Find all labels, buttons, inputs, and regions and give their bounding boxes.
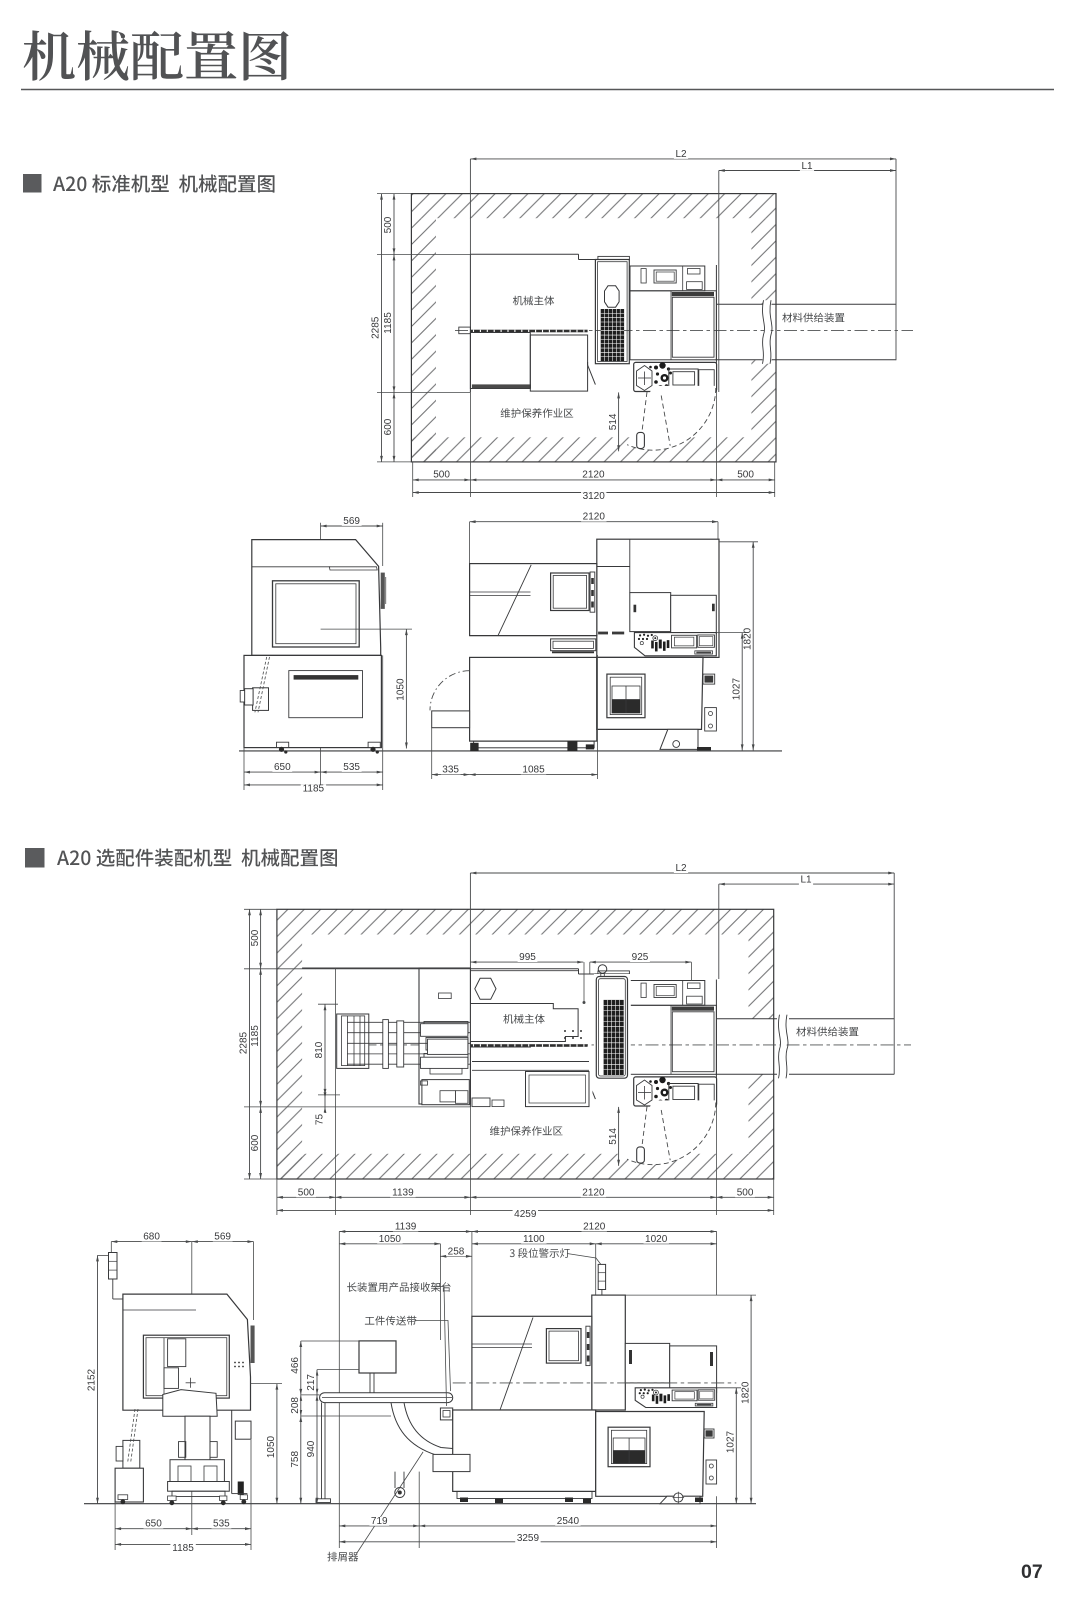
svg-text:2540: 2540 xyxy=(557,1516,580,1527)
svg-text:535: 535 xyxy=(343,762,360,773)
svg-text:650: 650 xyxy=(145,1519,162,1530)
svg-text:680: 680 xyxy=(143,1232,160,1243)
svg-text:335: 335 xyxy=(442,765,459,776)
svg-text:L2: L2 xyxy=(675,149,687,160)
svg-text:258: 258 xyxy=(448,1246,465,1257)
svg-text:569: 569 xyxy=(343,516,360,527)
svg-text:3120: 3120 xyxy=(583,491,606,502)
svg-text:1100: 1100 xyxy=(523,1234,545,1245)
svg-text:1185: 1185 xyxy=(303,784,325,795)
svg-text:500: 500 xyxy=(383,216,394,233)
svg-text:1139: 1139 xyxy=(392,1187,414,1198)
svg-text:2152: 2152 xyxy=(87,1368,98,1391)
svg-text:1027: 1027 xyxy=(726,1430,737,1453)
svg-text:1185: 1185 xyxy=(250,1025,261,1047)
svg-text:L1: L1 xyxy=(800,875,812,886)
svg-text:4259: 4259 xyxy=(514,1209,537,1220)
svg-text:514: 514 xyxy=(608,413,619,430)
svg-text:07: 07 xyxy=(1021,1561,1043,1583)
svg-text:500: 500 xyxy=(250,929,261,946)
svg-text:75: 75 xyxy=(315,1114,326,1126)
svg-text:1185: 1185 xyxy=(172,1543,194,1554)
svg-text:500: 500 xyxy=(433,470,450,481)
svg-text:2120: 2120 xyxy=(582,1187,605,1198)
svg-text:1027: 1027 xyxy=(731,678,742,701)
svg-text:569: 569 xyxy=(214,1232,231,1243)
svg-text:500: 500 xyxy=(298,1187,315,1198)
svg-text:L1: L1 xyxy=(801,161,813,172)
svg-text:514: 514 xyxy=(608,1128,619,1145)
svg-text:2120: 2120 xyxy=(583,1222,606,1233)
svg-text:810: 810 xyxy=(314,1041,325,1058)
svg-text:758: 758 xyxy=(290,1451,301,1468)
svg-text:1050: 1050 xyxy=(266,1435,277,1458)
svg-text:2120: 2120 xyxy=(583,512,606,523)
svg-text:719: 719 xyxy=(371,1516,388,1527)
svg-text:500: 500 xyxy=(737,1187,754,1198)
svg-text:3259: 3259 xyxy=(517,1533,540,1544)
svg-text:535: 535 xyxy=(213,1519,230,1530)
svg-text:925: 925 xyxy=(632,952,649,963)
svg-text:2285: 2285 xyxy=(371,316,382,339)
svg-text:L2: L2 xyxy=(675,863,687,874)
svg-text:466: 466 xyxy=(290,1357,301,1374)
svg-text:1085: 1085 xyxy=(522,765,545,776)
svg-text:2285: 2285 xyxy=(239,1031,250,1054)
svg-text:600: 600 xyxy=(250,1134,261,1151)
svg-text:1185: 1185 xyxy=(383,312,394,334)
svg-text:1820: 1820 xyxy=(740,1381,751,1404)
svg-text:600: 600 xyxy=(383,418,394,435)
svg-text:500: 500 xyxy=(737,470,754,481)
svg-text:2120: 2120 xyxy=(582,470,605,481)
svg-text:1139: 1139 xyxy=(395,1222,417,1233)
svg-text:1020: 1020 xyxy=(645,1234,668,1245)
svg-text:650: 650 xyxy=(274,762,291,773)
svg-text:217: 217 xyxy=(306,1374,317,1391)
svg-text:208: 208 xyxy=(290,1397,301,1414)
svg-text:1820: 1820 xyxy=(742,627,753,650)
svg-text:940: 940 xyxy=(306,1440,317,1457)
svg-text:995: 995 xyxy=(519,952,536,963)
svg-text:1050: 1050 xyxy=(396,678,407,701)
svg-text:1050: 1050 xyxy=(379,1234,402,1245)
